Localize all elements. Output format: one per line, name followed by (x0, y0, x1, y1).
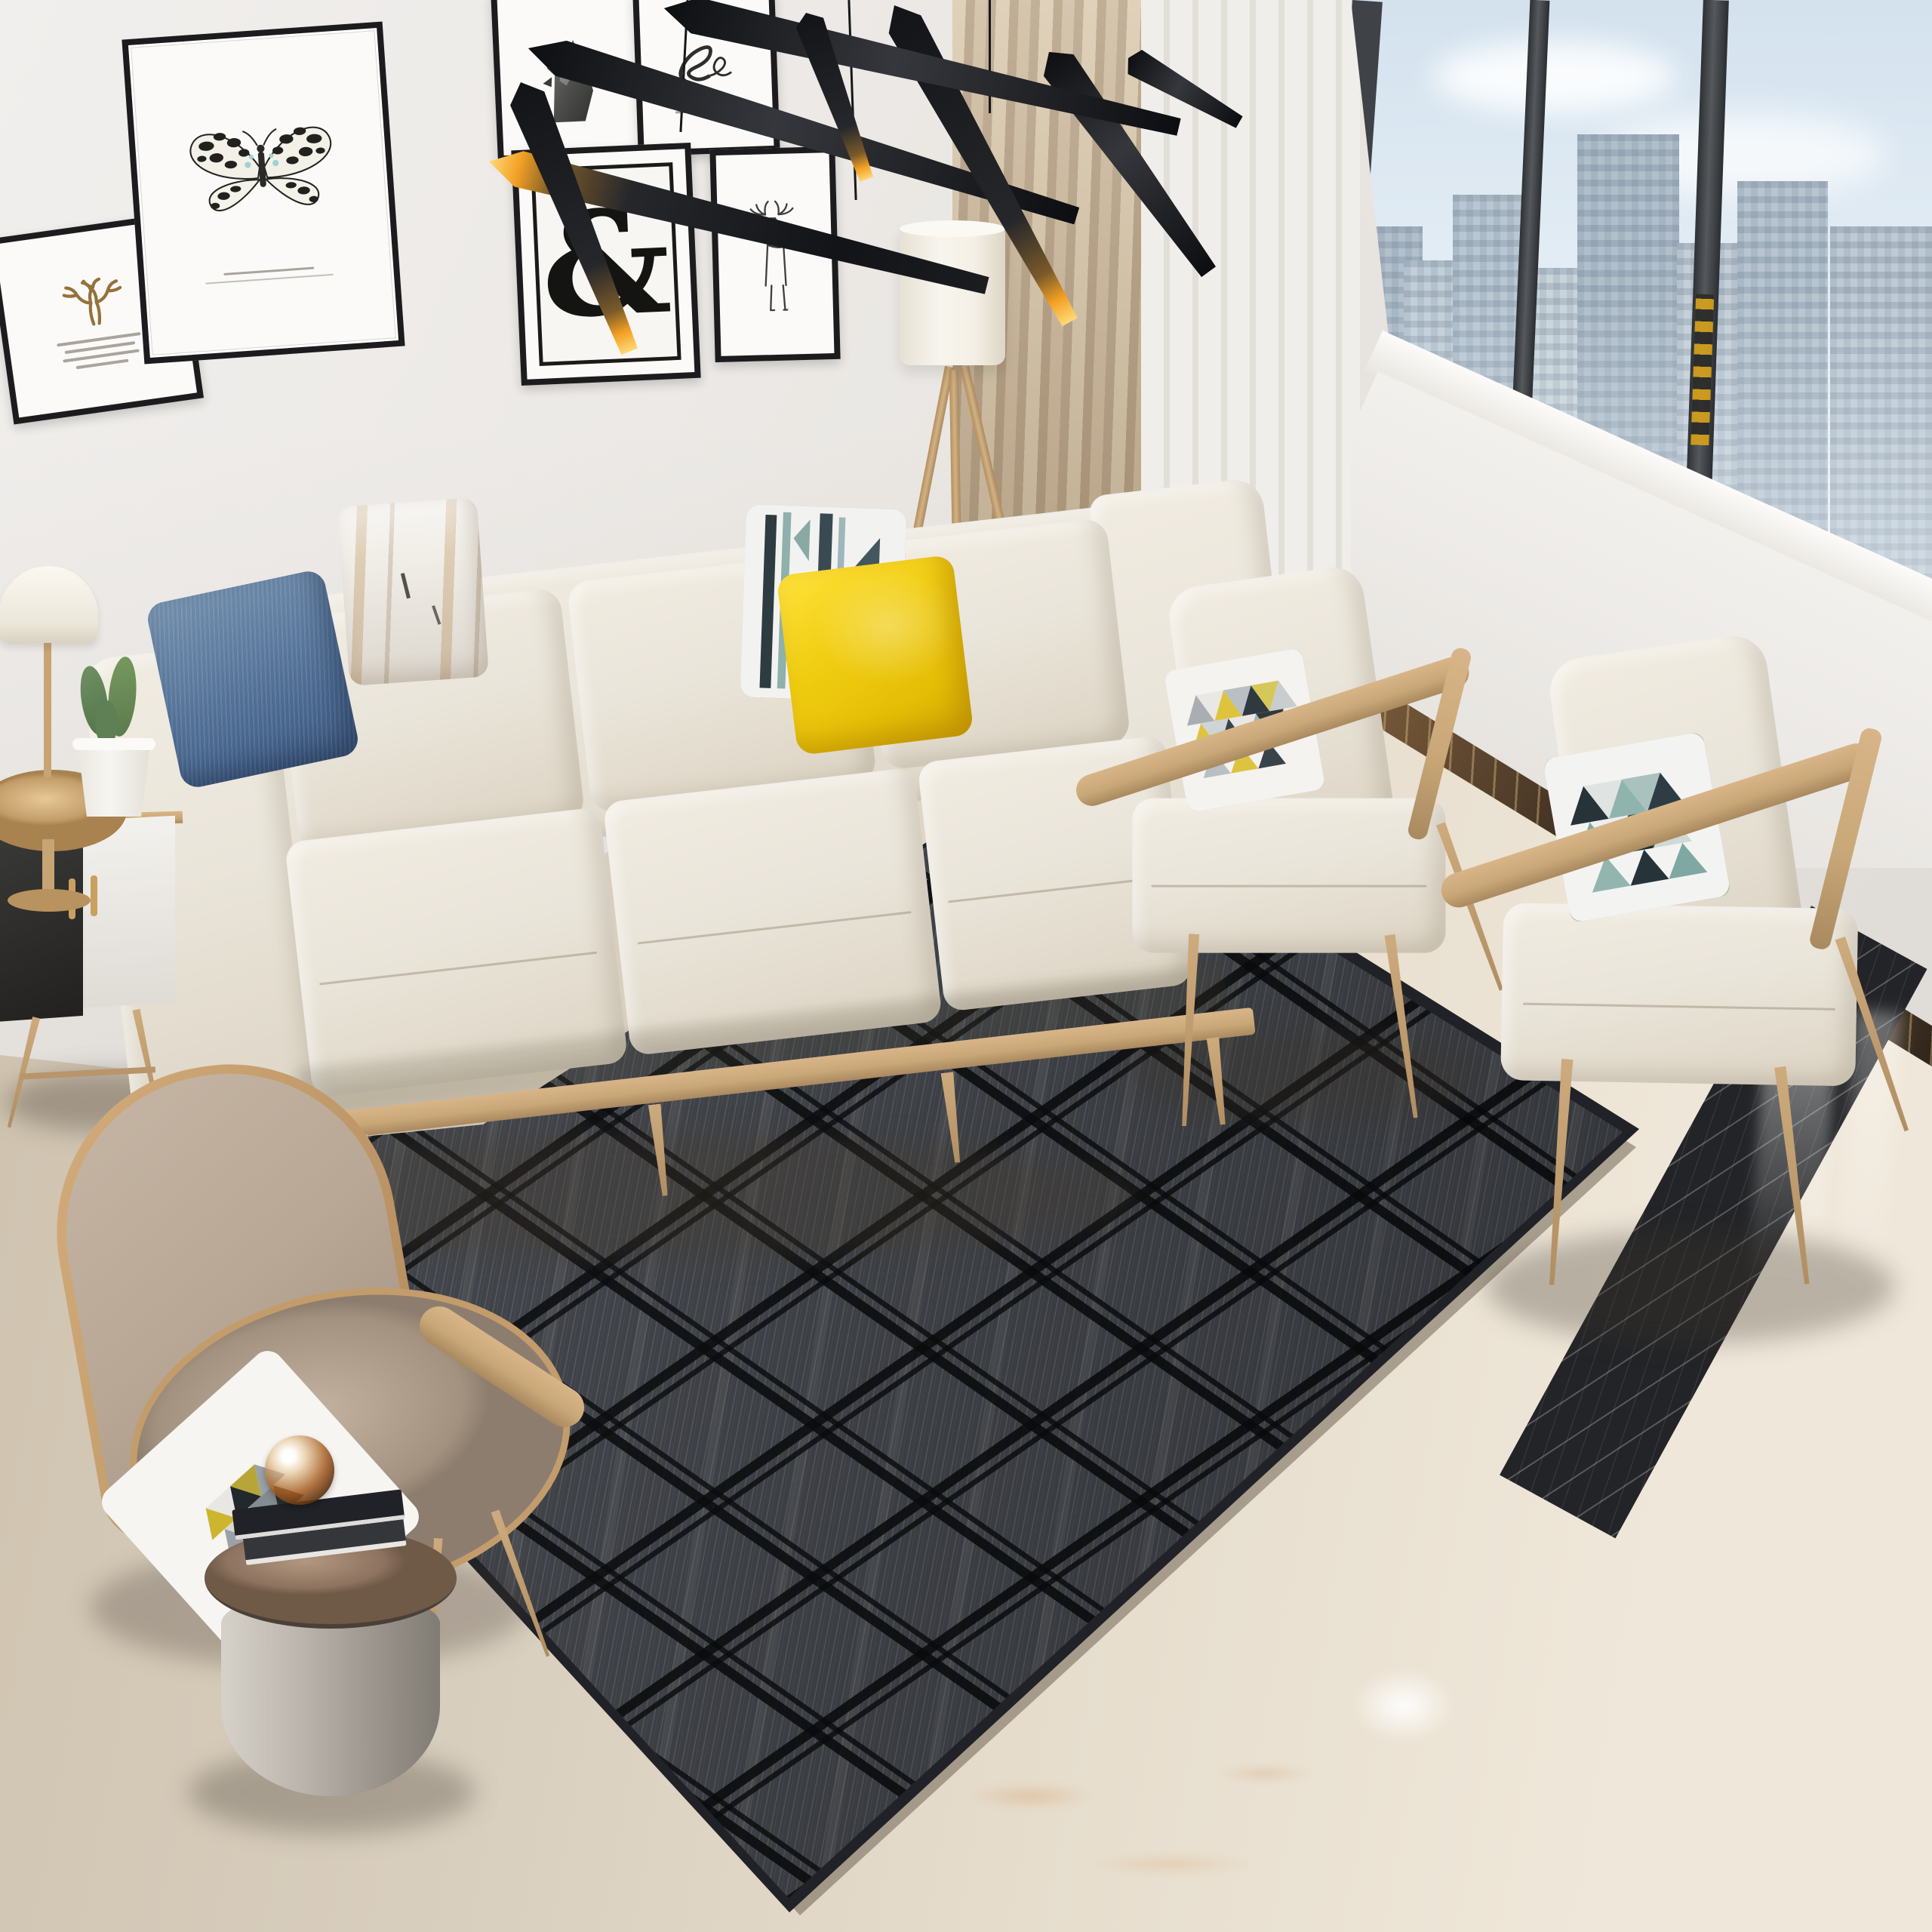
white-pot (74, 741, 154, 817)
caption-line (75, 358, 128, 369)
armchair-right (1451, 641, 1930, 1329)
sofa-leg (645, 1103, 675, 1197)
paint-dash (401, 573, 411, 598)
living-room-scene: & (0, 0, 1932, 1932)
caption-line (205, 273, 334, 284)
armchair-leg (1543, 1059, 1577, 1286)
paint-dash (432, 605, 441, 625)
tray-base (8, 889, 91, 912)
glass-ball (265, 1435, 334, 1505)
pot-rim (72, 738, 155, 750)
blue-pillow (145, 568, 361, 790)
caption-line (223, 266, 314, 275)
table-lamp-dome (0, 566, 98, 643)
butterfly-art (173, 100, 352, 244)
window-frame-left (1351, 0, 1383, 349)
armchair-seat-cushion (1500, 903, 1858, 1086)
armchair-leg (1176, 934, 1202, 1127)
sofa-leg (937, 1072, 967, 1164)
armchair-leg (1382, 934, 1424, 1119)
yellow-pillow (776, 555, 974, 756)
lamp-shade-top (900, 220, 1005, 237)
butterfly-print-frame (122, 21, 405, 364)
floor-glare-spot (1351, 1668, 1457, 1743)
cloud (1434, 42, 1675, 113)
armchair-seat-cushion (1132, 798, 1445, 953)
table-lamp-stem (44, 634, 51, 777)
deer-art (737, 185, 814, 324)
cactus-pot (72, 657, 163, 823)
antlers-art (33, 264, 153, 338)
armchair-leg (1771, 1066, 1816, 1285)
lamp-shade (900, 225, 1005, 365)
drum-side-table (200, 1502, 517, 1819)
tray-pedestal (42, 839, 54, 895)
paint-stroke-pillow (337, 497, 489, 686)
yellow-black-hardware (1690, 294, 1714, 446)
